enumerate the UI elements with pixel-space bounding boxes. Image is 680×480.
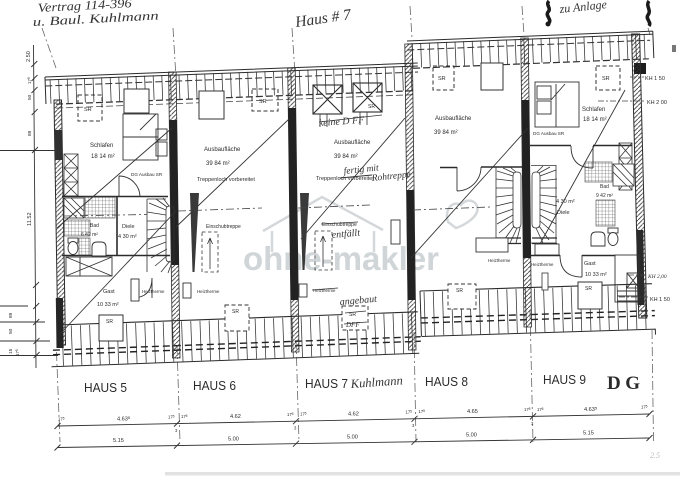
svg-text:Heiztherme: Heiztherme xyxy=(531,262,554,267)
svg-text:11.52: 11.52 xyxy=(27,212,33,226)
svg-text:15: 15 xyxy=(8,348,14,354)
svg-text:4 30 m²: 4 30 m² xyxy=(118,234,137,240)
svg-text:5.00: 5.00 xyxy=(466,433,477,439)
svg-text:HAUS 5: HAUS 5 xyxy=(84,381,127,395)
svg-text:Schlafen: Schlafen xyxy=(90,143,113,149)
svg-text:Ausbaufläche: Ausbaufläche xyxy=(204,147,241,153)
svg-text:HAUS 8: HAUS 8 xyxy=(425,375,468,389)
svg-text:4 30 m²: 4 30 m² xyxy=(556,199,575,205)
svg-text:DG: DG xyxy=(607,373,645,394)
svg-text:Heiztherme: Heiztherme xyxy=(142,289,165,294)
svg-text:SR: SR xyxy=(106,319,113,325)
svg-text:Einschubtreppe: Einschubtreppe xyxy=(206,224,241,230)
svg-text:4.62: 4.62 xyxy=(230,414,241,420)
svg-text:2.50: 2.50 xyxy=(26,51,32,62)
svg-text:39 84 m²: 39 84 m² xyxy=(434,130,458,136)
svg-text:18 14 m²: 18 14 m² xyxy=(583,117,607,123)
svg-text:4.62: 4.62 xyxy=(348,412,359,418)
svg-text:SR: SR xyxy=(438,76,446,82)
svg-text:89: 89 xyxy=(27,130,33,136)
svg-text:SR: SR xyxy=(259,99,267,105)
svg-text:DG Ausbau SR: DG Ausbau SR xyxy=(533,131,565,136)
svg-text:SR: SR xyxy=(585,286,592,292)
svg-text:Schlafen: Schlafen xyxy=(582,107,605,113)
svg-text:5.15: 5.15 xyxy=(583,431,594,437)
svg-text:Treppenloch vorbereitet: Treppenloch vorbereitet xyxy=(316,176,374,182)
svg-text:10 33 m²: 10 33 m² xyxy=(97,302,119,308)
svg-text:50: 50 xyxy=(8,328,14,334)
svg-text:HAUS 6: HAUS 6 xyxy=(193,379,236,393)
svg-text:Treppenloch vorbereitet: Treppenloch vorbereitet xyxy=(197,177,255,183)
svg-text:5.00: 5.00 xyxy=(347,434,358,440)
svg-text:Ausbaufläche: Ausbaufläche xyxy=(435,116,472,122)
svg-text:SR: SR xyxy=(602,76,610,82)
svg-text:39 84 m²: 39 84 m² xyxy=(206,161,230,167)
svg-text:5.00: 5.00 xyxy=(228,436,239,442)
svg-text:KH 1 50: KH 1 50 xyxy=(650,297,670,303)
svg-text:Heiztherme: Heiztherme xyxy=(488,258,511,263)
svg-text:2.5: 2.5 xyxy=(650,451,660,460)
svg-text:Diele: Diele xyxy=(557,210,570,216)
svg-text:DFF: DFF xyxy=(345,321,360,329)
svg-text:SR: SR xyxy=(456,288,463,294)
svg-text:18 14 m²: 18 14 m² xyxy=(91,154,115,160)
svg-text:Gast: Gast xyxy=(103,289,115,295)
svg-text:Ausbaufläche: Ausbaufläche xyxy=(334,140,371,146)
svg-text:SR: SR xyxy=(232,309,239,315)
svg-text:KH 2,00: KH 2,00 xyxy=(647,274,667,280)
svg-text:Bad: Bad xyxy=(600,184,609,190)
svg-text:9 42 m²: 9 42 m² xyxy=(596,193,613,199)
svg-text:SR: SR xyxy=(368,104,375,110)
svg-text:SR: SR xyxy=(84,107,92,113)
svg-text:4.65: 4.65 xyxy=(467,409,478,415)
svg-text:50: 50 xyxy=(27,94,33,100)
svg-text:89: 89 xyxy=(8,312,14,318)
svg-text:HAUS 9: HAUS 9 xyxy=(543,373,586,387)
svg-text:DG Ausbau SR: DG Ausbau SR xyxy=(131,172,163,177)
svg-text:Diele: Diele xyxy=(122,224,135,230)
svg-text:10 33 m²: 10 33 m² xyxy=(585,272,607,278)
svg-text:5.15: 5.15 xyxy=(113,438,124,444)
svg-text:Bad: Bad xyxy=(90,223,99,229)
svg-text:KH 1 50: KH 1 50 xyxy=(645,76,665,82)
svg-text:Gast: Gast xyxy=(584,261,596,267)
svg-text:6 42 m²: 6 42 m² xyxy=(81,232,98,238)
svg-text:KH 2 00: KH 2 00 xyxy=(647,100,667,106)
svg-text:39 84 m²: 39 84 m² xyxy=(334,154,358,160)
svg-text:HAUS 7: HAUS 7 xyxy=(305,377,348,391)
svg-text:Heiztherme: Heiztherme xyxy=(197,289,220,294)
